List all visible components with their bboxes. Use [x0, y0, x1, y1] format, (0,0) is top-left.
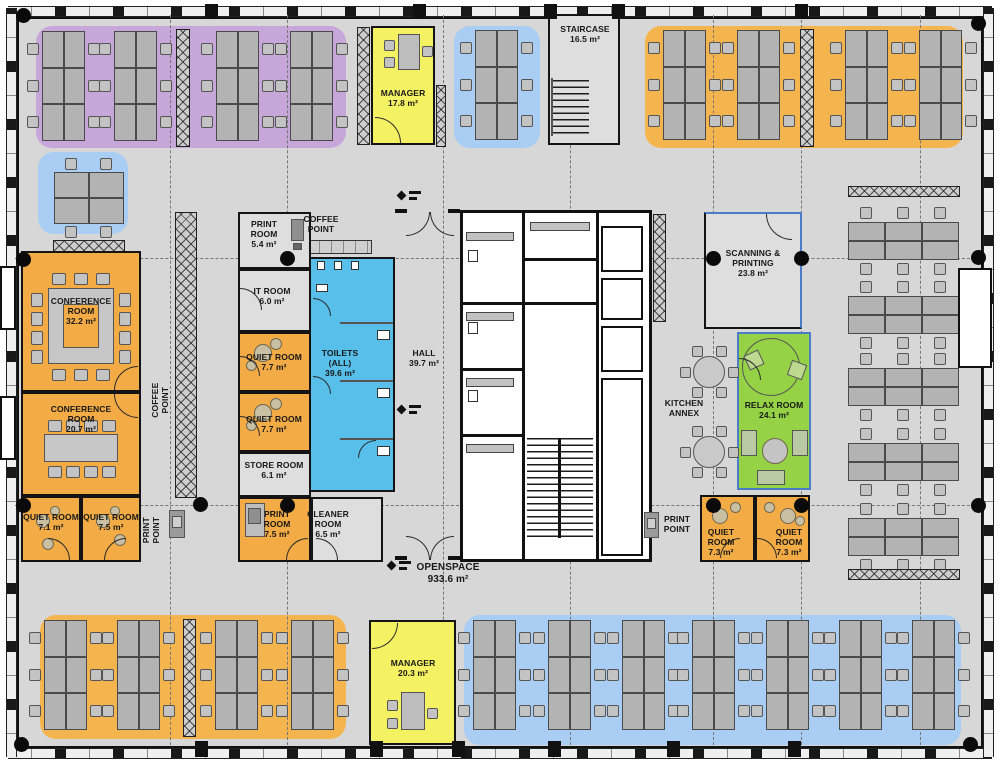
label-kitchen-annex: KITCHEN ANNEX	[658, 398, 710, 418]
exterior-wall-east	[983, 8, 994, 757]
chair	[102, 705, 114, 717]
desk	[622, 693, 644, 730]
desk	[848, 462, 885, 481]
structural-column	[16, 8, 31, 23]
window-bay	[0, 396, 16, 460]
room-name-label: PRINT ROOM	[244, 219, 284, 239]
chair	[200, 632, 212, 644]
desk	[622, 620, 644, 657]
chair	[607, 705, 619, 717]
desk	[912, 657, 934, 694]
desk	[136, 31, 158, 68]
chair	[200, 705, 212, 717]
room-area-label: 16.5 m²	[550, 34, 620, 44]
wall-stub	[612, 4, 625, 19]
desk	[114, 31, 136, 68]
chair	[262, 80, 274, 92]
desk	[89, 172, 124, 198]
desk	[644, 693, 666, 730]
desk	[941, 103, 963, 140]
cabinet-strip	[436, 85, 446, 147]
chair	[904, 79, 916, 91]
desk	[885, 315, 922, 334]
label-quiet-77b: QUIET ROOM7.7 m²	[238, 414, 310, 434]
chair	[66, 466, 80, 478]
chair	[102, 669, 114, 681]
chair	[830, 79, 842, 91]
furniture	[398, 34, 420, 70]
furniture	[44, 434, 118, 462]
chair	[160, 80, 172, 92]
desk	[644, 620, 666, 657]
desk	[766, 620, 788, 657]
chair	[100, 158, 112, 170]
core-counter	[466, 312, 514, 321]
label-manager-top: MANAGER17.8 m²	[373, 88, 433, 108]
chair	[738, 705, 750, 717]
chair	[27, 80, 39, 92]
room-area-label: 7.3 m²	[769, 547, 809, 557]
desk	[692, 693, 714, 730]
desk	[919, 30, 941, 67]
desk	[885, 462, 922, 481]
cabinet-strip	[653, 214, 666, 322]
chair	[812, 705, 824, 717]
desk	[312, 104, 334, 141]
desk	[216, 31, 238, 68]
core-counter	[466, 444, 514, 453]
desk	[912, 693, 934, 730]
desk	[692, 657, 714, 694]
core-wall	[463, 302, 522, 305]
desk	[663, 30, 685, 67]
desk	[885, 296, 922, 315]
chair	[897, 632, 909, 644]
chair	[738, 669, 750, 681]
desk	[139, 620, 161, 657]
furniture	[780, 508, 796, 524]
chair	[519, 705, 531, 717]
chair	[160, 116, 172, 128]
desk	[313, 657, 335, 694]
chair	[692, 387, 703, 398]
label-manager-bottom: MANAGER20.3 m²	[383, 658, 443, 678]
furniture	[551, 78, 553, 136]
desk	[66, 693, 88, 730]
urinal-icon	[334, 261, 342, 270]
wall-stub	[413, 4, 426, 19]
desk	[934, 693, 956, 730]
desk	[117, 657, 139, 694]
room-area-label: 23.8 m²	[723, 268, 783, 278]
desk	[714, 620, 736, 657]
furniture	[270, 338, 282, 350]
elevator-shaft	[601, 226, 643, 272]
chair	[337, 705, 349, 717]
exterior-wall-north	[8, 6, 992, 17]
room-area-label: 17.8 m²	[373, 98, 433, 108]
room-name-label: KITCHEN ANNEX	[658, 398, 710, 418]
desk	[861, 657, 883, 694]
room-area-label: 7.3 m²	[701, 547, 741, 557]
label-staircase: STAIRCASE16.5 m²	[550, 24, 620, 44]
sink-icon	[316, 284, 328, 292]
furniture	[730, 502, 741, 513]
desk	[136, 104, 158, 141]
desk	[848, 518, 885, 537]
room-name-label: HALL	[399, 348, 449, 358]
chair	[860, 207, 872, 219]
chair	[934, 409, 946, 421]
chair	[99, 80, 111, 92]
desk	[737, 30, 759, 67]
cabinet-strip	[176, 29, 190, 147]
chair	[751, 632, 763, 644]
chair	[84, 466, 98, 478]
desk	[766, 657, 788, 694]
label-quiet-73a: QUIET ROOM7.3 m²	[701, 527, 741, 558]
desk	[663, 103, 685, 140]
axis-marker-icon	[409, 197, 417, 200]
wall-stub	[544, 4, 557, 19]
chair	[519, 669, 531, 681]
desk	[737, 67, 759, 104]
desk	[64, 31, 86, 68]
chair	[31, 350, 43, 364]
chair	[519, 632, 531, 644]
desk	[922, 518, 959, 537]
chair	[336, 80, 348, 92]
desk	[570, 620, 592, 657]
structural-column	[706, 498, 721, 513]
label-coffee-left: COFFEE POINT	[150, 376, 170, 424]
chair	[751, 669, 763, 681]
desk	[848, 222, 885, 241]
core-wall	[522, 213, 525, 559]
desk	[475, 67, 497, 104]
chair	[607, 632, 619, 644]
room-area-label: 20.7 m²	[45, 424, 117, 434]
desk	[848, 315, 885, 334]
desk	[714, 657, 736, 694]
chair	[897, 353, 909, 365]
chair	[680, 367, 691, 378]
room-name-label: SCANNING & PRINTING	[723, 248, 783, 268]
core-staircase-rail	[558, 438, 561, 538]
furniture	[270, 398, 282, 410]
room-name-label: QUIET ROOM	[82, 512, 140, 522]
chair	[722, 115, 734, 127]
desk	[934, 620, 956, 657]
label-quiet-75: QUIET ROOM7.5 m²	[82, 512, 140, 532]
desk	[737, 103, 759, 140]
desk	[42, 31, 64, 68]
desk	[848, 368, 885, 387]
chair	[716, 346, 727, 357]
chair	[460, 115, 472, 127]
room-name-label: QUIET ROOM	[238, 414, 310, 424]
chair	[891, 79, 903, 91]
wall-stub	[788, 741, 801, 757]
chair	[709, 42, 721, 54]
chair	[958, 669, 970, 681]
desk	[291, 620, 313, 657]
chair	[830, 115, 842, 127]
desk	[215, 620, 237, 657]
chair	[709, 115, 721, 127]
wall-stub	[195, 741, 208, 757]
structural-column	[14, 737, 29, 752]
chair	[594, 705, 606, 717]
label-quiet-73b: QUIET ROOM7.3 m²	[769, 527, 809, 558]
room-area-label: 32.2 m²	[45, 316, 117, 326]
cabinet-strip	[183, 619, 196, 737]
core-wall	[463, 368, 522, 371]
chair	[201, 116, 213, 128]
furniture	[340, 380, 393, 382]
chair	[824, 669, 836, 681]
desk	[788, 693, 810, 730]
desk	[759, 67, 781, 104]
axis-marker-icon	[409, 191, 421, 194]
chair	[648, 79, 660, 91]
elevator-shaft	[601, 378, 643, 556]
desk	[216, 68, 238, 105]
room-area-label: 7.7 m²	[238, 362, 310, 372]
desk	[64, 68, 86, 105]
desk	[622, 657, 644, 694]
desk	[922, 462, 959, 481]
window-bay	[958, 268, 992, 368]
chair	[677, 669, 689, 681]
desk	[919, 67, 941, 104]
desk	[139, 693, 161, 730]
desk	[44, 657, 66, 694]
printer-icon	[647, 518, 656, 529]
room-name-label: CONFERENCE ROOM	[45, 296, 117, 316]
desk	[54, 198, 89, 224]
chair	[27, 43, 39, 55]
wc-fixture	[377, 446, 390, 456]
desk	[845, 30, 867, 67]
chair	[337, 632, 349, 644]
chair	[934, 503, 946, 515]
room-name-label: QUIET ROOM	[22, 512, 80, 522]
chair	[885, 705, 897, 717]
wall-stub	[452, 741, 465, 757]
desk	[685, 103, 707, 140]
desk	[861, 620, 883, 657]
structural-column	[706, 251, 721, 266]
chair	[934, 428, 946, 440]
chair	[716, 426, 727, 437]
kitchen-table	[693, 436, 725, 468]
chair	[677, 632, 689, 644]
chair	[891, 115, 903, 127]
desk	[714, 693, 736, 730]
structural-column	[280, 251, 295, 266]
room-area-label: 6.1 m²	[238, 470, 310, 480]
chair	[201, 43, 213, 55]
chair	[716, 467, 727, 478]
chair	[722, 79, 734, 91]
coffee-counter	[306, 240, 372, 254]
wall-stub	[795, 4, 808, 19]
wc-fixture	[468, 250, 478, 262]
desk	[663, 67, 685, 104]
chair	[48, 466, 62, 478]
chair	[74, 369, 88, 381]
desk	[312, 68, 334, 105]
chair	[860, 484, 872, 496]
staircase-treads	[551, 80, 589, 136]
chair	[692, 346, 703, 357]
chair	[31, 312, 43, 326]
wc-fixture	[377, 388, 390, 398]
chair	[692, 426, 703, 437]
room-name-label: OPENSPACE	[406, 562, 490, 574]
label-conference-2: CONFERENCE ROOM20.7 m²	[45, 404, 117, 435]
desk	[934, 657, 956, 694]
room-name-label: TOILETS (ALL)	[317, 348, 363, 368]
desk	[845, 103, 867, 140]
wall-stub	[205, 4, 218, 19]
desk	[54, 172, 89, 198]
urinal-icon	[351, 261, 359, 270]
chair	[904, 115, 916, 127]
chair	[860, 263, 872, 275]
chair	[533, 632, 545, 644]
desk	[66, 657, 88, 694]
desk	[867, 103, 889, 140]
room-area-label: 5.4 m²	[244, 239, 284, 249]
desk	[290, 31, 312, 68]
desk	[497, 103, 519, 140]
core-counter	[466, 232, 514, 241]
chair	[460, 79, 472, 91]
chair	[119, 331, 131, 345]
desk	[941, 30, 963, 67]
desk	[867, 30, 889, 67]
desk	[912, 620, 934, 657]
room-name-label: QUIET ROOM	[701, 527, 741, 547]
desk	[114, 68, 136, 105]
desk	[685, 67, 707, 104]
structural-column	[16, 252, 31, 267]
chair	[677, 705, 689, 717]
chair	[160, 43, 172, 55]
desk	[475, 103, 497, 140]
cabinet-strip	[800, 29, 814, 147]
chair	[52, 273, 66, 285]
label-print-left: PRINT POINT	[141, 510, 161, 550]
room-area-label: 39.7 m²	[399, 358, 449, 368]
desk	[848, 443, 885, 462]
desk	[839, 693, 861, 730]
chair	[521, 42, 533, 54]
desk	[114, 104, 136, 141]
label-cleaner: CLEANER ROOM6.5 m²	[303, 509, 353, 540]
desk	[237, 657, 259, 694]
desk	[139, 657, 161, 694]
desk	[839, 620, 861, 657]
chair	[607, 669, 619, 681]
desk	[291, 693, 313, 730]
chair	[90, 669, 102, 681]
structural-column	[794, 251, 809, 266]
chair	[427, 708, 438, 719]
chair	[965, 79, 977, 91]
room-area-label: 6.5 m²	[303, 529, 353, 539]
desk	[941, 67, 963, 104]
desk	[313, 693, 335, 730]
chair	[783, 115, 795, 127]
desk	[473, 620, 495, 657]
label-toilets: TOILETS (ALL)39.6 m²	[317, 348, 363, 379]
desk	[238, 104, 260, 141]
desk	[922, 296, 959, 315]
urinal-icon	[317, 261, 325, 270]
desk	[922, 315, 959, 334]
chair	[65, 226, 77, 238]
cabinet-strip	[848, 186, 960, 197]
desk	[548, 693, 570, 730]
room-area-label: 39.6 m²	[317, 368, 363, 378]
chair	[74, 273, 88, 285]
chair	[897, 484, 909, 496]
kitchen-table	[693, 356, 725, 388]
desk	[845, 67, 867, 104]
desk	[215, 693, 237, 730]
label-print-bottom: PRINT ROOM7.5 m²	[257, 509, 297, 540]
desk	[759, 30, 781, 67]
furniture	[792, 430, 808, 456]
chair	[200, 669, 212, 681]
label-openspace: OPENSPACE933.6 m²	[406, 562, 490, 586]
chair	[812, 632, 824, 644]
chair	[384, 40, 395, 51]
desk	[548, 657, 570, 694]
desk	[237, 693, 259, 730]
furniture	[340, 438, 393, 440]
desk	[788, 657, 810, 694]
room-name-label: RELAX ROOM	[738, 400, 810, 410]
desk	[313, 620, 335, 657]
room-name-label: QUIET ROOM	[238, 352, 310, 362]
chair	[100, 226, 112, 238]
desk	[497, 30, 519, 67]
room-name-label: MANAGER	[383, 658, 443, 668]
desk	[312, 31, 334, 68]
structural-column	[971, 498, 986, 513]
chair	[119, 293, 131, 307]
label-print-top: PRINT ROOM5.4 m²	[244, 219, 284, 250]
wall-stub	[667, 741, 680, 757]
desk	[238, 68, 260, 105]
chair	[860, 428, 872, 440]
chair	[824, 705, 836, 717]
furniture	[762, 438, 788, 464]
chair	[275, 116, 287, 128]
room-area-label: 7.5 m²	[82, 522, 140, 532]
label-relax: RELAX ROOM24.1 m²	[738, 400, 810, 420]
desk	[692, 620, 714, 657]
desk	[570, 693, 592, 730]
room-name-label: MANAGER	[373, 88, 433, 98]
chair	[897, 263, 909, 275]
chair	[965, 115, 977, 127]
chair	[96, 273, 110, 285]
